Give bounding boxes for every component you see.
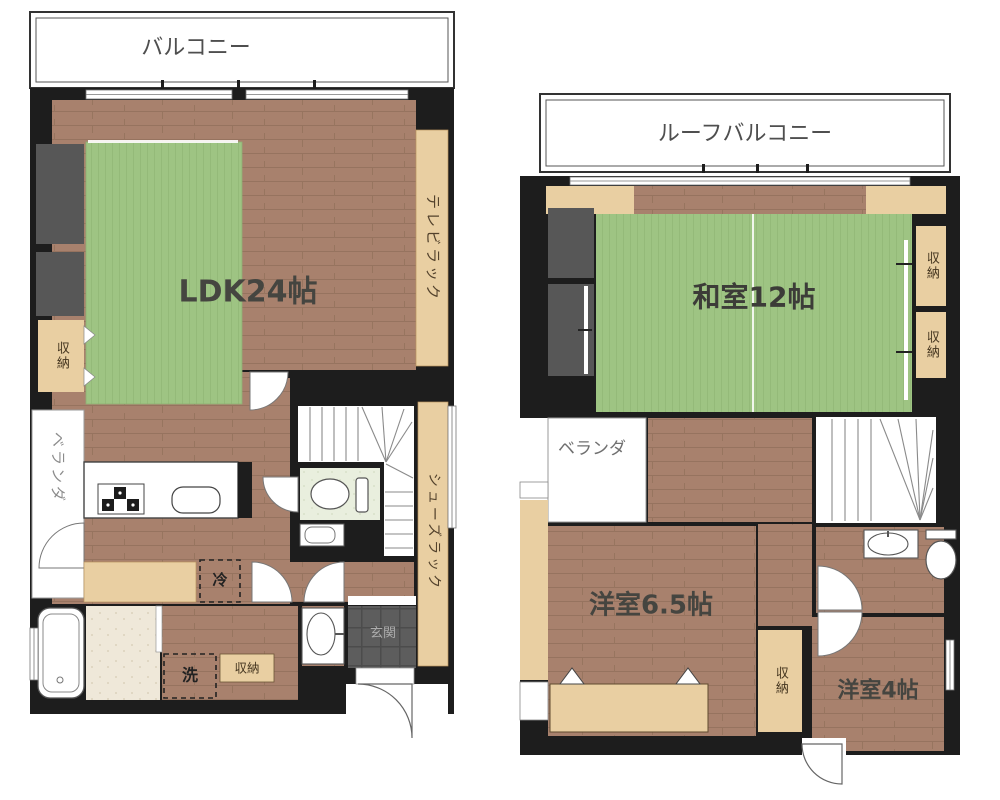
plan2-western4-door-arc xyxy=(802,744,842,784)
plan2-storage-middle-label: 収納 xyxy=(773,666,787,696)
plan2-toilet xyxy=(926,530,956,579)
plan1-kitchen-unit-upper xyxy=(36,144,84,244)
toilet-bowl xyxy=(311,479,349,509)
plan2-closet-upper xyxy=(548,208,594,278)
bathtub xyxy=(38,608,84,698)
plan1-kitchen-counter xyxy=(84,462,252,518)
kitchen-sink xyxy=(172,487,220,513)
plan1-veranda-label: ベランダ xyxy=(49,432,65,504)
plan2-storage-right-bottom-label: 収納 xyxy=(924,330,938,360)
plan1-shoe-rack-label: シューズラック xyxy=(426,473,441,591)
plan2-stairs xyxy=(816,417,936,523)
plan1-bathroom xyxy=(38,606,162,700)
plan2-storage-right-top-label: 収納 xyxy=(924,251,938,281)
toilet-tank xyxy=(356,478,368,512)
plan1-storage-bottom-label: 収納 xyxy=(234,661,259,674)
plan1-entrance-label: 玄関 xyxy=(370,627,396,641)
plan1-fridge-label: 冷 xyxy=(212,573,227,589)
plan1-storage-left-label: 収納 xyxy=(54,341,68,371)
plan2-veranda-label: ベランダ xyxy=(558,441,626,459)
plan1-balcony-label: バルコニー xyxy=(141,36,251,59)
plan2-washbasin xyxy=(864,530,918,558)
plan2-western-4-label: 洋室4帖 xyxy=(837,679,918,702)
plan1-tv-rack-label: テレビラック xyxy=(424,194,440,302)
floorplan-canvas: バルコニー LDK24帖 テレビラック 収納 ベランダ 冷 洗 収納 シューズラ… xyxy=(0,0,1000,800)
plan1-washer-label: 洗 xyxy=(182,668,198,685)
plan1-washbasin xyxy=(302,608,344,664)
plan1-ldk-label: LDK24帖 xyxy=(178,276,317,308)
plan1-lower-cabinet xyxy=(84,562,196,602)
plan2-roof-balcony-label: ルーフバルコニー xyxy=(658,122,832,145)
bed xyxy=(550,684,708,732)
plan2-western-65-label: 洋室6.5帖 xyxy=(589,592,713,619)
plan1-green-rug xyxy=(86,142,242,404)
bathroom-door xyxy=(156,606,162,652)
plan1-kitchen-unit-lower xyxy=(36,252,84,316)
plan2-washitsu-label: 和室12帖 xyxy=(693,282,816,311)
plan2-walkway xyxy=(648,418,812,522)
